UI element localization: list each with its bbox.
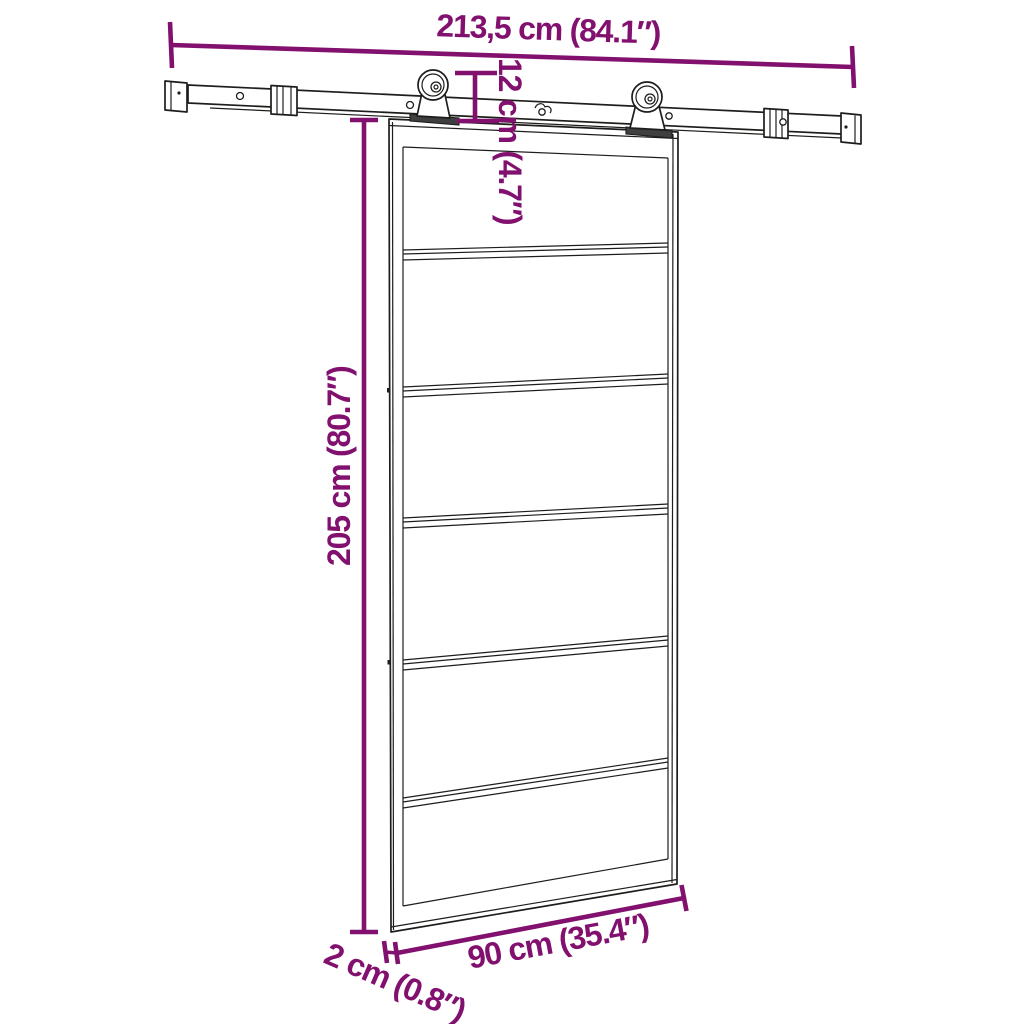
diagram-canvas: 213,5 cm (84.1″) 12 cm (4.7″) 205 cm (80… bbox=[0, 0, 1024, 1024]
track-hole bbox=[666, 113, 672, 119]
stile-joint-mark bbox=[388, 660, 392, 665]
track-end-cap-right bbox=[841, 113, 861, 144]
sliding-door bbox=[387, 119, 678, 932]
dimension-door-height: 205 cm (80.7″) bbox=[321, 120, 378, 932]
track-hole bbox=[407, 102, 414, 109]
dimension-tick bbox=[852, 46, 854, 88]
track-hole bbox=[237, 93, 244, 100]
dim-door-height-label: 205 cm (80.7″) bbox=[321, 366, 357, 566]
dimension-tick bbox=[682, 885, 687, 911]
roller-axle-right bbox=[645, 94, 655, 104]
track-screw-dot bbox=[844, 125, 847, 128]
dimension-line bbox=[385, 952, 397, 953]
dimension-tick bbox=[170, 22, 172, 68]
track-hole bbox=[780, 119, 786, 125]
dimension-door-thickness: 2 cm (0.8″) bbox=[319, 935, 471, 1024]
door-outline bbox=[389, 119, 678, 932]
stile-joint-mark bbox=[387, 388, 391, 393]
dim-hanger-height-label: 12 cm (4.7″) bbox=[492, 58, 528, 225]
track-end-cap-left bbox=[165, 81, 187, 112]
track-screw-dot bbox=[177, 91, 180, 94]
dim-door-width-label: 90 cm (35.4″) bbox=[465, 907, 652, 976]
product-dimension-diagram: 213,5 cm (84.1″) 12 cm (4.7″) 205 cm (80… bbox=[0, 0, 1024, 1024]
track-connector-left bbox=[271, 86, 297, 116]
roller-axle-left bbox=[431, 82, 441, 92]
dim-track-width-label: 213,5 cm (84.1″) bbox=[436, 7, 661, 50]
